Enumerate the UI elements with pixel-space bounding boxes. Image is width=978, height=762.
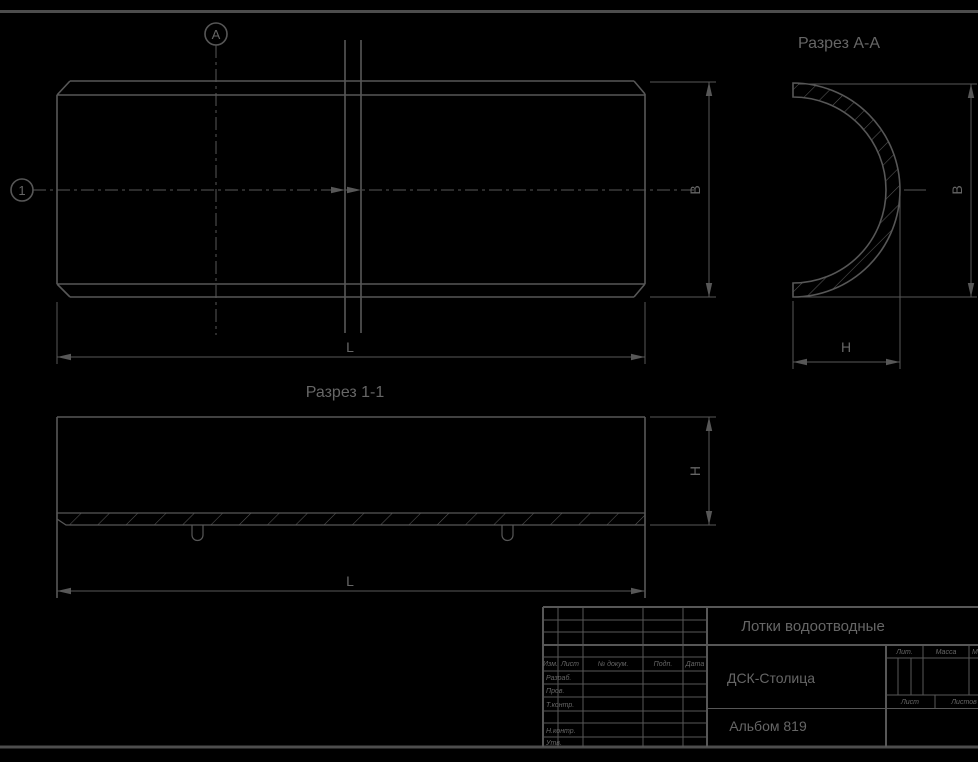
channel-side-outline [57,417,645,598]
s11-dimension-l: L [57,573,645,594]
sheet-frame [0,12,978,748]
dim-l-arrow-left-icon [57,354,71,360]
title-block: Лотки водоотводные ДСК-Столица Альбом 81… [543,607,978,747]
role-prov-label: Пров. [546,688,565,695]
plan-view: А 1 B L [11,23,716,364]
dim-b-arrow-top-icon [706,82,712,96]
masshtab-label: Масштаб [972,648,978,656]
aa-dim-h-arrow-right-icon [886,359,900,365]
aa-dim-h-arrow-left-icon [793,359,807,365]
section-marker-a: А [205,23,227,45]
s11-dim-l-arrow-left-icon [57,588,71,594]
section-1-1-title: Разрез 1-1 [306,384,385,401]
dim-b-label: B [687,185,703,194]
plan-dimension-l: L [57,302,645,364]
s11-dim-h-label: H [687,466,703,476]
aa-dim-b-label: B [949,185,965,194]
marker-a-label: А [212,27,221,42]
s11-dim-h-arrow-bottom-icon [706,511,712,525]
col-list-label: Лист [560,661,579,668]
role-n-kontr-label: Н.контр. [546,728,576,735]
role-utv-label: Утв. [545,740,562,747]
col-podp-label: Подп. [654,660,673,668]
lit-label: Лит. [895,649,912,656]
album-number: Альбом 819 [729,718,807,734]
s11-dim-h-lines [650,417,716,525]
joint-lines [345,40,361,333]
section-aa-title: Разрез А-А [798,35,880,52]
aa-dim-h-label: H [841,339,851,355]
s11-dim-h-arrow-top-icon [706,417,712,431]
section-aa-view: Разрез А-А B H [793,35,977,369]
lifting-loop-left [192,525,203,541]
drawing-sheet: А 1 B L Разрез А-А [0,0,978,762]
role-razrab-label: Разраб. [546,674,571,682]
list-label: Лист [900,699,919,706]
aa-dim-b-arrow-bottom-icon [968,283,974,297]
channel-section-ring [793,83,900,297]
lifting-loop-right [502,525,513,541]
col-data-label: Дата [685,661,705,668]
section-1-1-view: Разрез 1-1 H L [57,384,716,598]
role-t-kontr-label: Т.контр. [546,702,574,709]
listov-label: Листов [950,699,977,706]
massa-label: Масса [936,649,957,656]
joint-arrow-right-icon [347,187,361,193]
marker-1-label: 1 [18,183,25,198]
dim-l-arrow-right-icon [631,354,645,360]
dim-l-label: L [346,339,354,355]
s11-dim-l-label: L [346,573,354,589]
aa-dim-b-arrow-top-icon [968,84,974,98]
joint-arrow-left-icon [331,187,345,193]
col-doc-num-label: № докум. [598,660,629,668]
dim-b-arrow-bottom-icon [706,283,712,297]
section-marker-1: 1 [11,179,33,201]
s11-dim-l-arrow-right-icon [631,588,645,594]
title-block-column-lines [558,607,683,747]
organization-name: ДСК-Столица [727,670,815,686]
col-izm-label: Изм. [543,661,558,668]
s11-dimension-h: H [650,417,716,525]
doc-name: Лотки водоотводные [741,618,885,635]
engineering-drawing: А 1 B L Разрез А-А [0,0,978,762]
bottom-wall-hatched [57,513,645,525]
